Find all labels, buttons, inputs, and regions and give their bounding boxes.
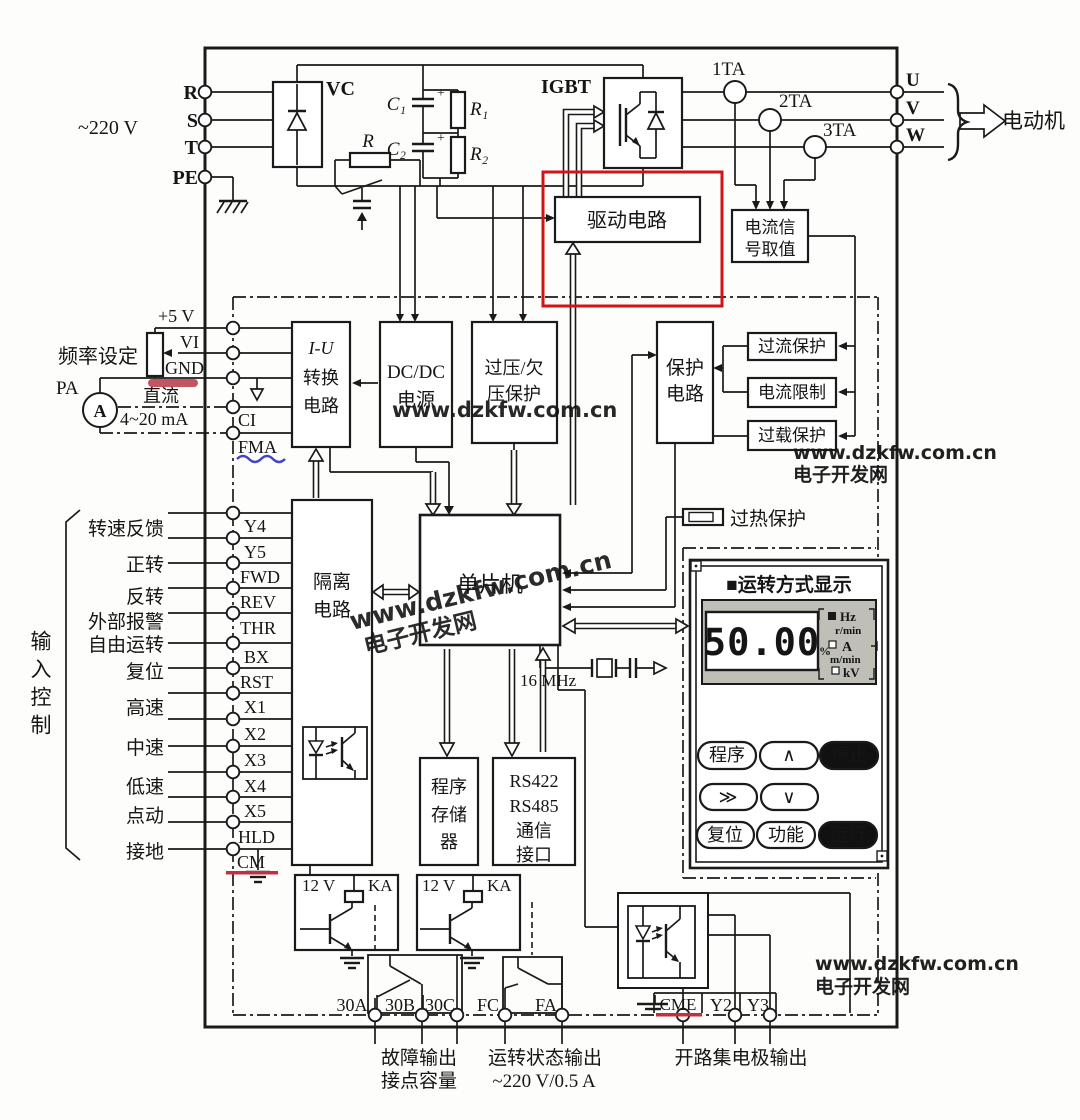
label-cme: CME xyxy=(660,995,697,1014)
unit-marker-a xyxy=(829,641,836,648)
label-y2: Y2 xyxy=(710,995,732,1015)
ovp-box xyxy=(472,322,557,443)
ta1-label: 1TA xyxy=(712,59,746,80)
overheat-label: 过热保护 xyxy=(730,508,806,530)
input-label-fwd: 正转 xyxy=(126,554,164,576)
watermark-orange1-site: 电子开发网 xyxy=(793,463,888,486)
terminal-rev xyxy=(227,582,240,595)
dcdc-box xyxy=(380,322,452,447)
reset-button-label: 复位 xyxy=(707,825,743,845)
clock-label: 16 MHz xyxy=(520,671,577,690)
input-label-low: 低速 xyxy=(126,776,164,798)
ac-voltage-label: ~220 V xyxy=(78,117,138,139)
input-label-jog: 点动 xyxy=(126,805,164,827)
terminal-y4 xyxy=(227,507,240,520)
code-rst: RST xyxy=(240,672,273,692)
panel-title: ■运转方式显示 xyxy=(726,573,851,596)
watermark-blue-url: www.dzkfw.com.cn xyxy=(392,398,617,422)
terminal-5v xyxy=(227,322,240,335)
ta3-label: 3TA xyxy=(823,120,857,141)
current-sense-line2: 号取值 xyxy=(745,240,796,259)
memory-line3: 器 xyxy=(440,832,458,852)
memory-line1: 程序 xyxy=(431,777,467,797)
open-collector-caption: 开路集电极输出 xyxy=(674,1047,807,1069)
phase-s-label: S xyxy=(187,110,198,132)
potentiometer-icon xyxy=(147,333,163,376)
crystal-icon xyxy=(597,659,612,677)
fault-output-caption1: 故障输出 xyxy=(381,1047,457,1069)
ma-range-label: 4~20 mA xyxy=(120,409,188,429)
terminal-t xyxy=(199,141,212,154)
ammeter-letter: A xyxy=(94,401,107,421)
inverter-schematic: VC R C₁ C₂ + + R₁ R₂ IGBT 驱动电路 电流信 号取值 I… xyxy=(0,0,1080,1120)
comm-line1: RS422 xyxy=(509,771,558,791)
memory-line2: 存储 xyxy=(431,805,467,825)
current-limit-label: 电流限制 xyxy=(758,383,826,402)
current-sense-line1: 电流信 xyxy=(745,218,796,237)
comm-line3: 通信 xyxy=(516,821,552,841)
ct-1ta-icon xyxy=(724,81,746,103)
up-button-label: ∧ xyxy=(782,745,795,765)
label-y3: Y3 xyxy=(747,995,769,1015)
c2-plus: + xyxy=(437,131,445,146)
unit-marker-kv xyxy=(832,667,839,674)
comm-line4: 接口 xyxy=(516,845,552,865)
r2-label: R₂ xyxy=(469,144,489,165)
protection-line1: 保护 xyxy=(666,357,704,379)
v-label: V xyxy=(906,98,920,119)
terminal-fwd xyxy=(227,557,240,570)
fma-label: FMA xyxy=(238,437,277,457)
unit-kv: kV xyxy=(843,665,860,680)
drive-circuit-label: 驱动电路 xyxy=(587,209,667,232)
protection-box xyxy=(657,322,713,443)
code-x5: X5 xyxy=(244,801,266,821)
terminal-vi xyxy=(227,347,240,360)
label-30a: 30A xyxy=(337,995,368,1015)
input-label-coast: 自由运转 xyxy=(88,634,164,656)
r1-resistor xyxy=(451,92,465,128)
vi-label: VI xyxy=(180,332,199,352)
terminal-x3 xyxy=(227,740,240,753)
gnd-label: GND xyxy=(165,358,204,378)
terminal-u xyxy=(891,86,904,99)
iu-line2: 转换 xyxy=(303,368,339,388)
run-status-caption1: 运转状态输出 xyxy=(488,1047,602,1069)
isolation-line2: 电路 xyxy=(313,599,351,621)
pa-label: PA xyxy=(56,378,79,399)
thermal-sensor-inner xyxy=(689,513,713,522)
unit-rmin: r/min xyxy=(835,625,861,637)
comm-line2: RS485 xyxy=(509,796,558,816)
input-group-label: 输入控制 xyxy=(28,630,52,742)
code-thr: THR xyxy=(240,618,276,638)
input-label-high: 高速 xyxy=(126,697,164,719)
terminal-r xyxy=(199,86,212,99)
terminal-gnd xyxy=(227,372,240,385)
terminal-bx xyxy=(227,637,240,650)
c2-label: C₂ xyxy=(387,139,407,160)
relay-coil2 xyxy=(464,891,482,902)
label-30c: 30C xyxy=(425,995,455,1015)
phase-t-label: T xyxy=(185,137,199,159)
input-label-earth: 接地 xyxy=(126,841,164,863)
code-x2: X2 xyxy=(244,724,266,744)
ct-2ta-icon xyxy=(759,109,781,131)
dcdc-line1: DC/DC xyxy=(387,362,445,383)
vc-label: VC xyxy=(326,78,355,100)
terminal-30a xyxy=(369,1009,382,1022)
p5v-label: +5 V xyxy=(158,306,194,326)
code-y5: Y5 xyxy=(244,542,266,562)
motor-label: 电动机 xyxy=(1002,109,1065,133)
terminal-fc xyxy=(499,1009,512,1022)
label-30b: 30B xyxy=(385,995,415,1015)
isolation-box xyxy=(292,500,372,865)
unit-marker-hz xyxy=(828,612,836,620)
relay2-ka-label: KA xyxy=(487,876,512,895)
input-label-rev: 反转 xyxy=(126,586,164,608)
fault-output-caption2: 接点容量 xyxy=(381,1070,457,1092)
code-bx: BX xyxy=(244,647,269,667)
output-brace xyxy=(948,84,967,160)
relay1-ka-label: KA xyxy=(368,876,393,895)
input-label-alarm: 外部报警 xyxy=(88,611,164,633)
terminal-fa xyxy=(556,1009,569,1022)
cm-red-underline xyxy=(226,871,278,875)
watermark-orange2-url: www.dzkfw.com.cn xyxy=(815,953,1019,975)
terminal-y5 xyxy=(227,532,240,545)
phase-r-label: R xyxy=(184,82,199,104)
igbt-label: IGBT xyxy=(541,76,592,98)
freq-set-label: 频率设定 xyxy=(58,345,138,368)
terminal-s xyxy=(199,114,212,127)
terminal-thr xyxy=(227,607,240,620)
isolation-line1: 隔离 xyxy=(313,571,351,593)
dc-label: 直流 xyxy=(143,386,179,406)
code-cm: CM xyxy=(237,852,265,872)
terminal-v xyxy=(891,114,904,127)
ta2-label: 2TA xyxy=(779,91,813,112)
relay2-12v-label: 12 V xyxy=(422,876,456,895)
relay1-12v-label: 12 V xyxy=(302,876,336,895)
terminal-x5 xyxy=(227,791,240,804)
input-label-speed-fb: 转速反馈 xyxy=(88,518,164,540)
optocoupler-icon xyxy=(303,727,367,779)
unit-a: A xyxy=(842,640,853,655)
label-fc: FC xyxy=(477,995,499,1015)
label-fa: FA xyxy=(535,995,557,1015)
schematic-page: VC R C₁ C₂ + + R₁ R₂ IGBT 驱动电路 电流信 号取值 I… xyxy=(0,0,1080,1120)
terminal-rst xyxy=(227,662,240,675)
terminal-x2 xyxy=(227,713,240,726)
stop-button-label: 停止 xyxy=(831,745,867,765)
relay-coil1 xyxy=(345,891,363,902)
run-status-caption2: ~220 V/0.5 A xyxy=(492,1071,596,1092)
cme-red-underline xyxy=(656,1013,702,1017)
code-y4: Y4 xyxy=(244,516,266,536)
operator-panel: ■运转方式显示 50.00 % Hz r/min A m/min kV 程序 ∧… xyxy=(690,560,888,868)
function-button-label: 功能 xyxy=(768,825,804,845)
watermark-orange2-site: 电子开发网 xyxy=(815,975,910,998)
lcd-value: 50.00 xyxy=(704,621,820,664)
terminal-w xyxy=(891,141,904,154)
pe-label: PE xyxy=(172,167,198,189)
code-x3: X3 xyxy=(244,750,266,770)
u-label: U xyxy=(906,70,920,91)
shift-button-label: ≫ xyxy=(719,787,738,807)
code-x4: X4 xyxy=(244,776,266,796)
unit-hz: Hz xyxy=(840,609,856,624)
c1-label: C₁ xyxy=(387,94,406,115)
ci-label: CI xyxy=(238,410,256,430)
r2-resistor xyxy=(451,137,465,173)
down-button-label: ∨ xyxy=(782,787,795,807)
input-label-mid: 中速 xyxy=(126,737,164,759)
code-x1: X1 xyxy=(244,697,266,717)
run-button-label: 运行 xyxy=(830,825,866,845)
overcurrent-label: 过流保护 xyxy=(758,337,826,356)
charge-resistor xyxy=(350,153,390,167)
watermark-orange1-url: www.dzkfw.com.cn xyxy=(793,442,997,464)
terminal-x4 xyxy=(227,766,240,779)
protection-line2: 电路 xyxy=(666,383,704,405)
input-label-reset: 复位 xyxy=(126,661,164,683)
iu-line3: 电路 xyxy=(303,396,339,416)
gnd-red-highlight xyxy=(148,379,198,387)
ovp-line1: 过压/欠 xyxy=(484,358,543,378)
c1-plus: + xyxy=(437,86,445,101)
w-label: W xyxy=(906,125,925,146)
terminal-x1 xyxy=(227,687,240,700)
terminal-pe xyxy=(199,171,212,184)
code-fwd: FWD xyxy=(240,567,280,587)
program-button-label: 程序 xyxy=(709,745,745,765)
code-rev: REV xyxy=(240,592,276,612)
r1-label: R₁ xyxy=(469,99,488,120)
iu-line1: I-U xyxy=(308,338,335,358)
code-hld: HLD xyxy=(238,827,275,847)
r-label: R xyxy=(361,131,374,152)
